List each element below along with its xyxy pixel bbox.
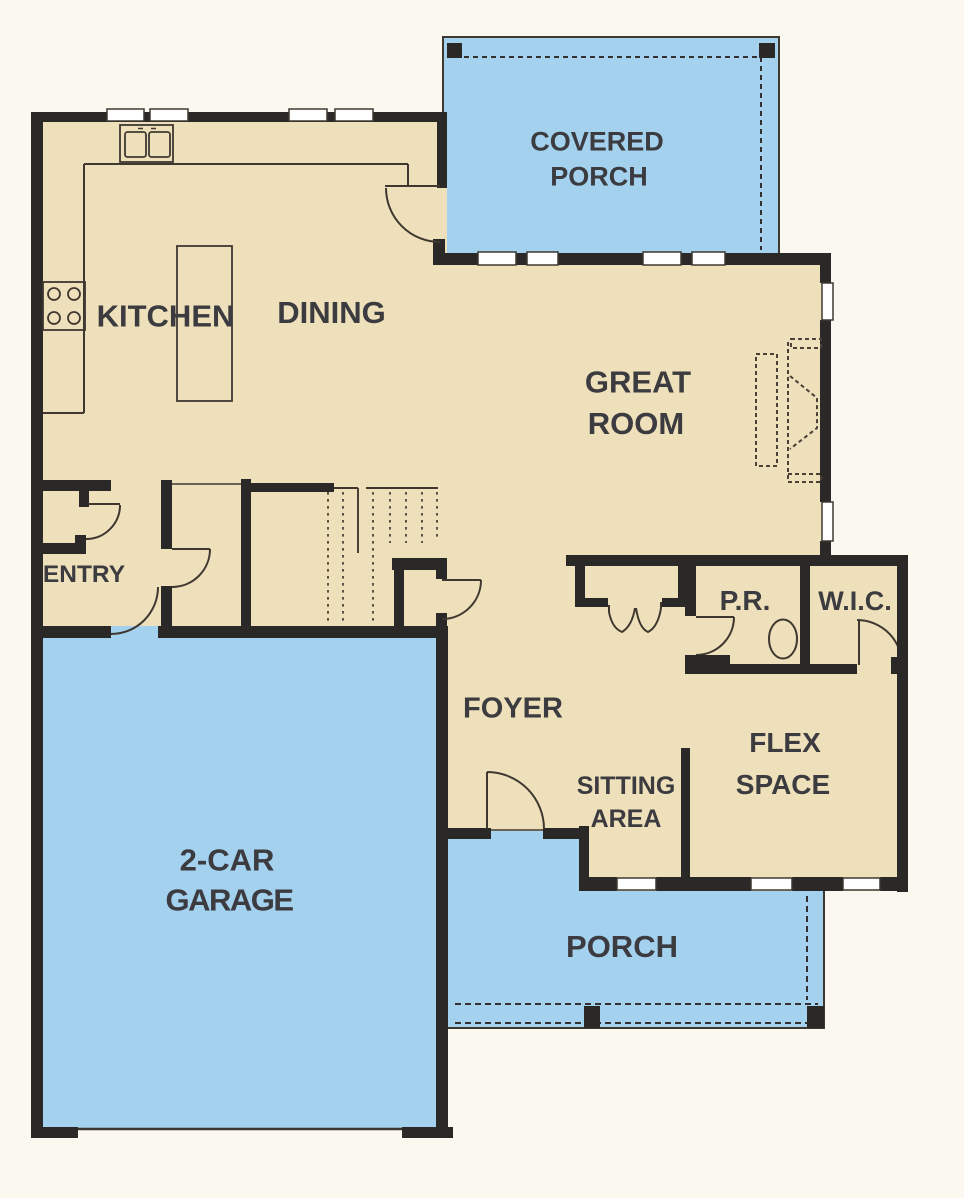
svg-text:SPACE: SPACE: [736, 769, 830, 800]
svg-text:SITTING: SITTING: [577, 772, 676, 800]
svg-text:AREA: AREA: [591, 805, 662, 833]
svg-text:GREAT: GREAT: [585, 364, 691, 399]
svg-text:ROOM: ROOM: [588, 406, 684, 441]
svg-text:FLEX: FLEX: [749, 727, 821, 758]
svg-text:ENTRY: ENTRY: [43, 561, 125, 588]
svg-text:P.R.: P.R.: [720, 585, 771, 616]
svg-text:FOYER: FOYER: [463, 693, 563, 725]
svg-text:KITCHEN: KITCHEN: [97, 298, 235, 333]
svg-text:PORCH: PORCH: [550, 162, 648, 192]
svg-text:PORCH: PORCH: [566, 929, 678, 964]
svg-text:W.I.C.: W.I.C.: [818, 586, 892, 616]
svg-text:DINING: DINING: [277, 295, 386, 330]
svg-text:GARAGE: GARAGE: [165, 882, 293, 917]
svg-text:2-CAR: 2-CAR: [180, 842, 275, 877]
svg-text:COVERED: COVERED: [530, 126, 664, 156]
